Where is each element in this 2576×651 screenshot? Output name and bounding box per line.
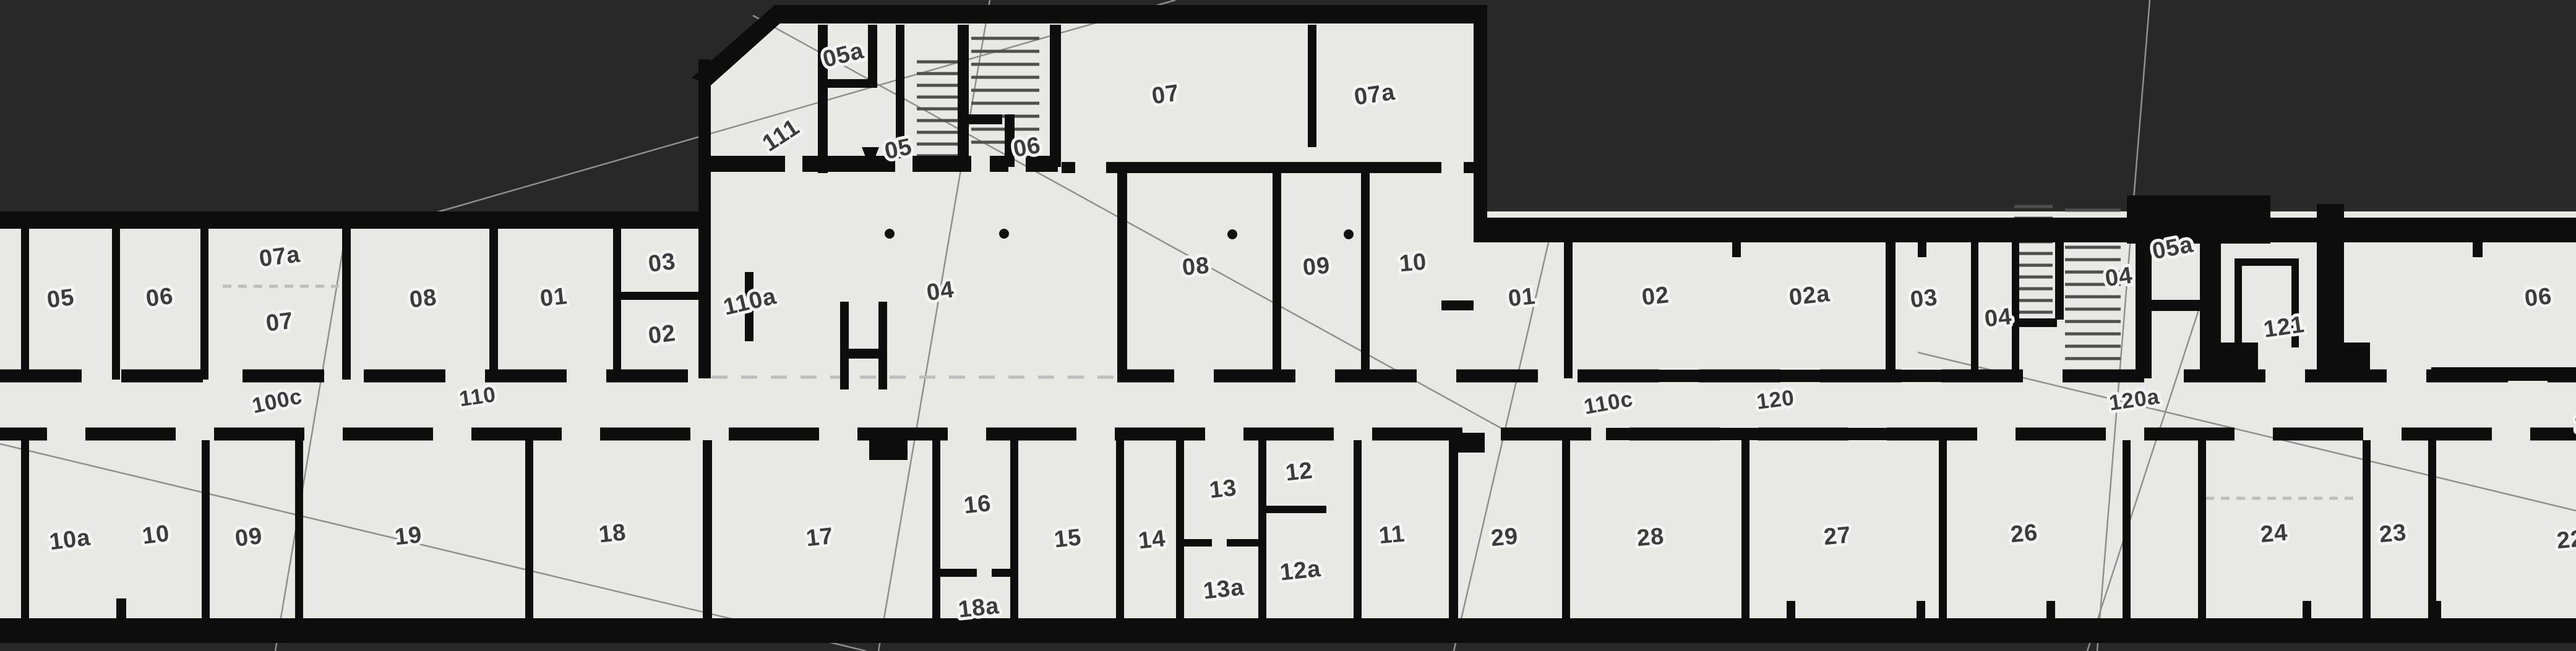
room-label-south-row-10a: 10a [48, 524, 92, 555]
room-label-south-row-27: 27 [1823, 522, 1852, 550]
room-label-south-row-11: 11 [1378, 521, 1406, 550]
room-label-south-row-12: 12 [1284, 457, 1314, 486]
room-label-east-wing-01: 01 [1507, 283, 1537, 312]
room-label-west-wing-05: 05 [46, 284, 76, 313]
room-label-south-row-12a: 12a [1279, 556, 1322, 586]
room-label-west-wing-02: 02 [647, 320, 677, 349]
room-label-south-row-24: 24 [2259, 519, 2289, 548]
room-label-south-row-22: 22 [2556, 525, 2576, 554]
room-label-annex-hall-04: 04 [925, 276, 956, 306]
room-label-south-row-29: 29 [1490, 523, 1519, 551]
room-label-south-row-18a: 18a [957, 593, 1000, 623]
room-label-upper-annex-06: 06 [1011, 132, 1043, 163]
room-label-south-row-13: 13 [1208, 475, 1238, 503]
room-label-east-wing-03: 03 [1909, 284, 1939, 313]
room-label-east-wing-04: 04 [2103, 262, 2134, 292]
room-label-east-wing-02a: 02a [1788, 281, 1831, 311]
room-label-west-wing-07a: 07a [258, 241, 302, 272]
room-label-south-row-23: 23 [2378, 519, 2408, 548]
room-label-annex-lower-08: 08 [1181, 252, 1211, 281]
room-label-west-wing-01: 01 [539, 283, 569, 312]
room-label-west-wing-06: 06 [145, 283, 175, 312]
room-label-south-row-19: 19 [393, 522, 423, 550]
room-label-south-row-15: 15 [1053, 524, 1083, 553]
room-label-west-wing-07: 07 [265, 308, 295, 337]
room-label-south-row-10: 10 [141, 521, 171, 550]
room-label-south-row-13a: 13a [1202, 574, 1245, 605]
room-label-west-wing-08: 08 [408, 284, 438, 313]
room-label-south-row-26: 26 [2009, 519, 2039, 548]
floor-plan-canvas: 05a11105060707a050607a0708010302110a0408… [0, 0, 2576, 651]
room-label-annex-lower-09: 09 [1302, 252, 1331, 281]
room-label-corridor-110: 110 [458, 382, 497, 411]
room-label-south-row-17: 17 [805, 523, 835, 551]
room-label-south-row-18: 18 [598, 519, 627, 548]
room-label-south-row-28: 28 [1636, 523, 1665, 551]
room-label-annex-lower-10: 10 [1398, 249, 1428, 277]
room-label-east-wing-04: 04 [1983, 304, 2013, 332]
room-label-south-row-09: 09 [234, 523, 264, 552]
room-label-west-wing-03: 03 [647, 249, 677, 278]
room-label-east-wing-06: 06 [2523, 283, 2553, 312]
room-label-upper-annex-07: 07 [1150, 80, 1181, 109]
room-label-corridor-120: 120 [1755, 386, 1796, 414]
room-label-south-row-14: 14 [1137, 525, 1167, 554]
room-label-east-wing-02: 02 [1641, 282, 1670, 310]
room-label-upper-annex-05: 05 [882, 134, 914, 164]
room-label-south-row-16: 16 [963, 490, 992, 519]
